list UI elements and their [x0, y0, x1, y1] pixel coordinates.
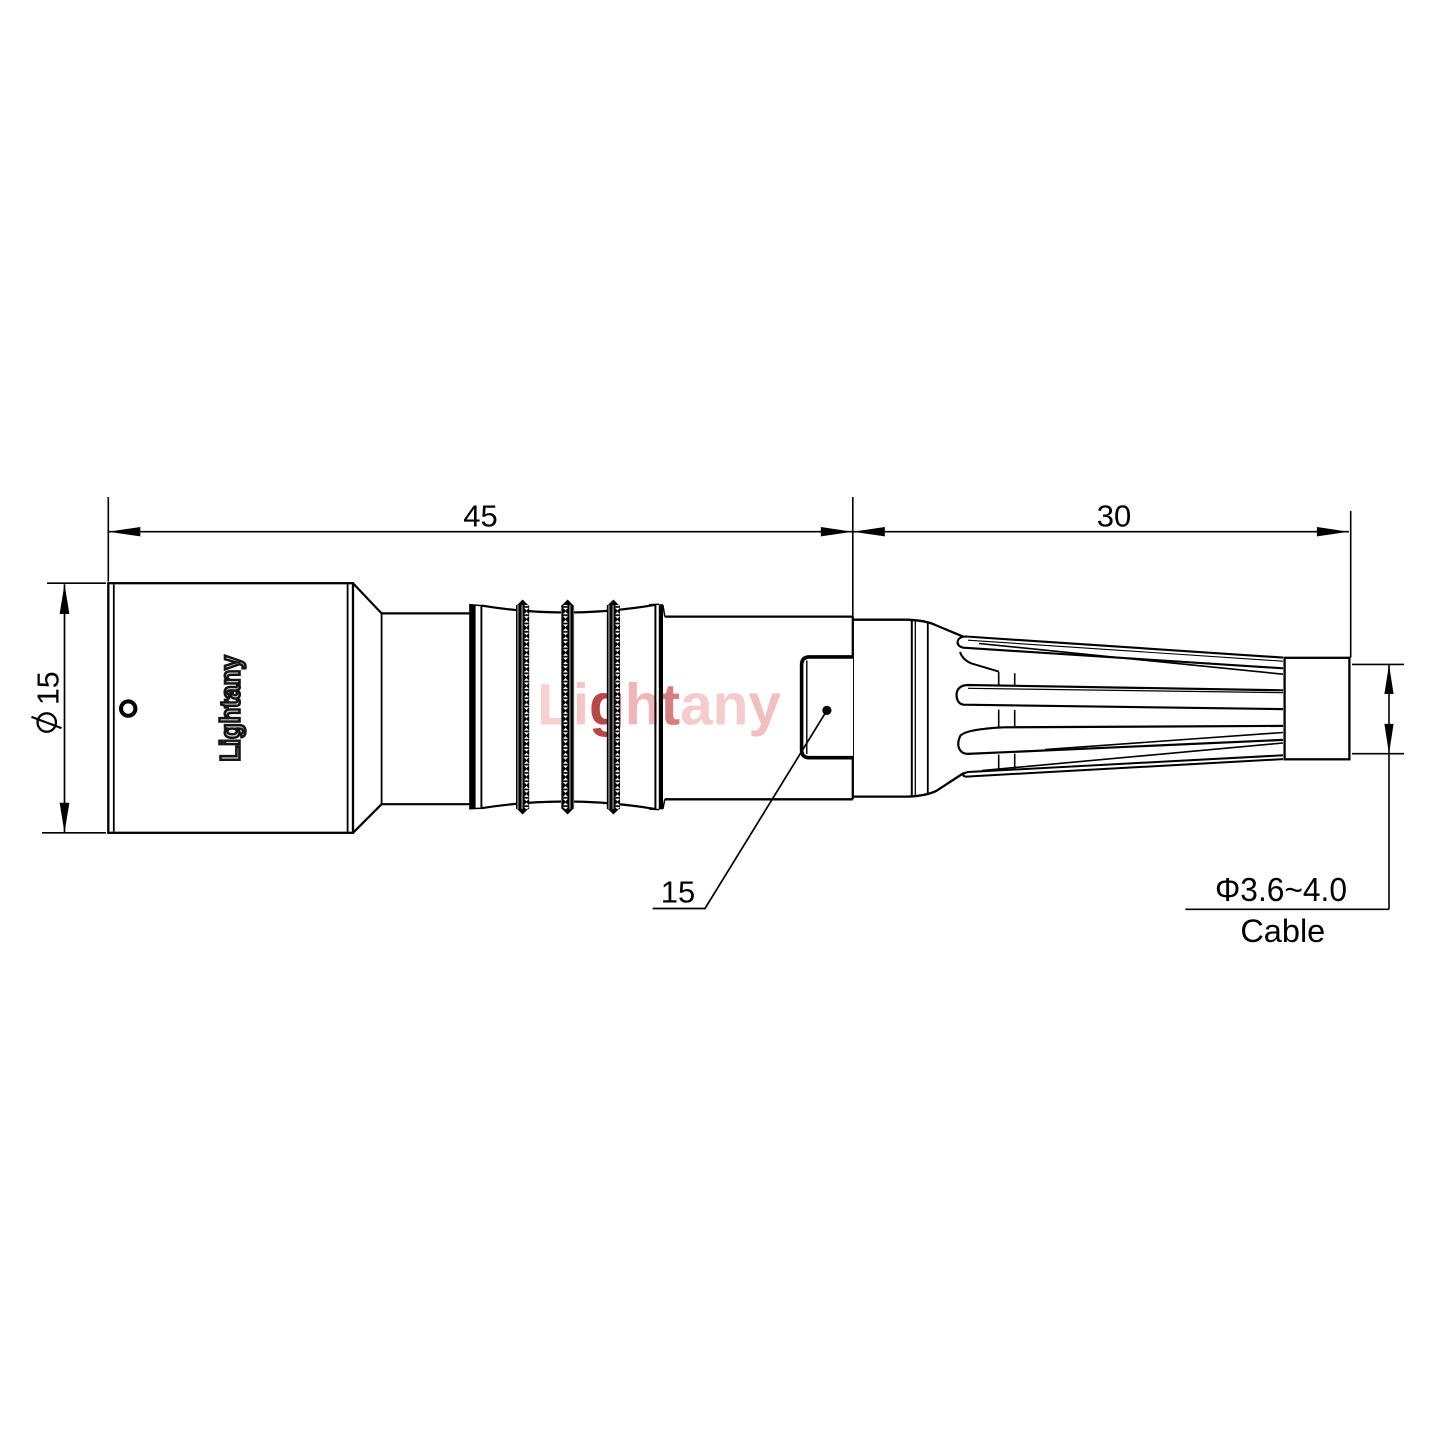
svg-text:45: 45	[463, 499, 497, 534]
svg-text:Cable: Cable	[1240, 913, 1325, 949]
svg-text:15: 15	[32, 671, 66, 705]
svg-text:Lightany: Lightany	[215, 655, 246, 762]
svg-text:30: 30	[1097, 499, 1131, 534]
svg-text:Φ3.6~4.0: Φ3.6~4.0	[1215, 871, 1347, 908]
svg-text:15: 15	[661, 874, 695, 909]
